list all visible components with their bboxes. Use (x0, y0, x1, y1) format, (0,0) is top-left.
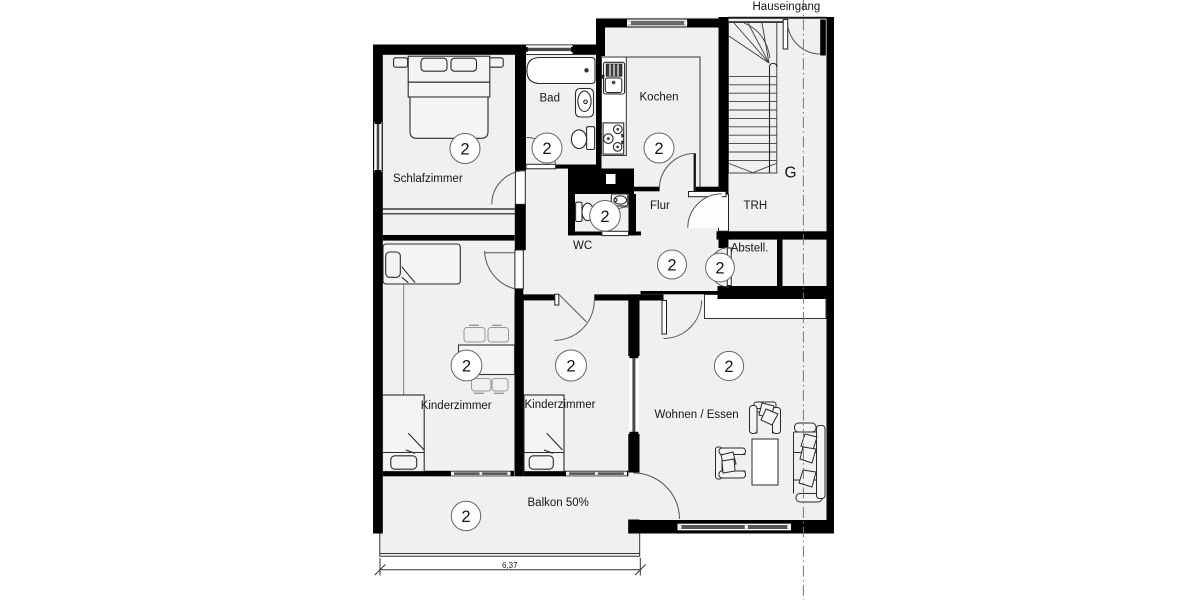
svg-text:Abstell.: Abstell. (731, 243, 769, 255)
svg-text:2: 2 (715, 260, 724, 278)
svg-text:2: 2 (566, 358, 575, 376)
svg-text:2: 2 (724, 358, 733, 376)
svg-text:Hauseingang: Hauseingang (753, 1, 821, 13)
svg-text:2: 2 (462, 358, 471, 376)
svg-text:Balkon 50%: Balkon 50% (528, 497, 589, 509)
svg-text:2: 2 (654, 140, 663, 158)
svg-text:2: 2 (542, 140, 551, 158)
svg-text:Wohnen / Essen: Wohnen / Essen (655, 409, 739, 421)
svg-text:Kochen: Kochen (640, 91, 679, 103)
svg-text:Schlafzimmer: Schlafzimmer (393, 173, 463, 185)
svg-text:2: 2 (600, 208, 609, 226)
svg-text:WC: WC (573, 240, 592, 252)
svg-text:Bad: Bad (540, 92, 560, 104)
svg-text:6,37: 6,37 (502, 561, 518, 570)
svg-text:G: G (785, 164, 797, 181)
svg-text:2: 2 (461, 508, 470, 526)
svg-text:Kinderzimmer: Kinderzimmer (525, 399, 596, 411)
svg-text:Flur: Flur (650, 200, 670, 212)
svg-text:Kinderzimmer: Kinderzimmer (421, 400, 492, 412)
svg-text:2: 2 (460, 141, 469, 159)
svg-text:2: 2 (667, 257, 676, 275)
svg-text:TRH: TRH (744, 200, 768, 212)
